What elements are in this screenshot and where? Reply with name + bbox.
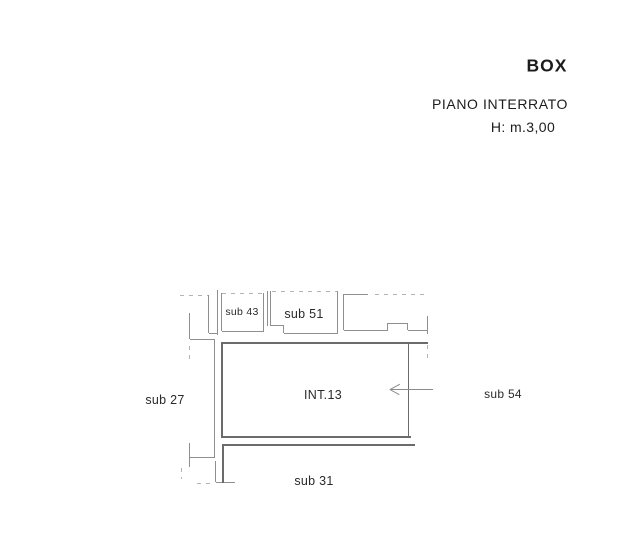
neighbor-right-dash xyxy=(427,345,428,358)
bottom-left-dash xyxy=(197,483,212,484)
left-corridor-wall-lower xyxy=(215,461,216,482)
left-corridor-wall xyxy=(214,339,215,457)
room-label-sub-27: sub 27 xyxy=(145,393,184,407)
int13-left-wall xyxy=(221,342,223,438)
page-title: BOX xyxy=(527,56,568,77)
sub51-right-wall xyxy=(337,291,338,333)
left-wall-dash-lower xyxy=(181,468,182,479)
sub51-top-dashed xyxy=(272,291,338,292)
int13-top-wall xyxy=(223,342,428,344)
left-wall-dash-upper xyxy=(189,346,190,361)
divider-wall-left xyxy=(267,291,268,326)
sub51-bottom-wall xyxy=(284,333,338,334)
neighbor-step-right xyxy=(407,323,408,330)
stair-left-wall xyxy=(208,295,209,333)
upper-left-wall-vertical xyxy=(189,313,190,339)
sub43-bottom-wall xyxy=(222,331,264,332)
divider-wall-right xyxy=(270,291,271,326)
neighbor-top-wall xyxy=(344,294,368,295)
lower-left-wall-horizontal xyxy=(190,457,215,458)
sub43-left-wall xyxy=(221,293,222,331)
neighbor-top-dashed xyxy=(375,294,428,295)
floor-label: PIANO INTERRATO xyxy=(432,96,568,112)
sub51-step-vertical xyxy=(283,325,284,333)
left-corridor-wall-foot xyxy=(216,482,235,483)
stair-top-dashed-line xyxy=(180,295,209,296)
sub31-top-boundary xyxy=(224,444,415,446)
room-label-int-13: INT.13 xyxy=(304,388,342,402)
sub43-top-dashed xyxy=(222,293,264,294)
stair-right-wall xyxy=(217,290,218,335)
cadastral-plan-page: BOX PIANO INTERRATO H: m.3,00 sub 43sub … xyxy=(0,0,620,541)
neighbor-bottom-wall-right xyxy=(408,330,428,331)
neighbor-step-top xyxy=(388,323,408,324)
sub31-left-boundary xyxy=(223,444,225,483)
int13-bottom-wall xyxy=(223,436,411,438)
neighbor-bottom-wall-left xyxy=(344,330,388,331)
neighbor-left-wall xyxy=(343,294,344,330)
ceiling-height-label: H: m.3,00 xyxy=(491,119,555,135)
room-label-sub-54: sub 54 xyxy=(484,387,522,401)
upper-left-wall-horizontal xyxy=(190,339,215,340)
room-label-sub-31: sub 31 xyxy=(294,474,333,488)
room-label-sub-43: sub 43 xyxy=(225,306,258,318)
lower-left-wall-vertical xyxy=(189,443,190,467)
room-label-sub-51: sub 51 xyxy=(284,307,323,321)
sub43-right-wall xyxy=(263,293,264,331)
neighbor-right-wall xyxy=(427,316,428,334)
entrance-arrow-shaft xyxy=(390,389,433,390)
